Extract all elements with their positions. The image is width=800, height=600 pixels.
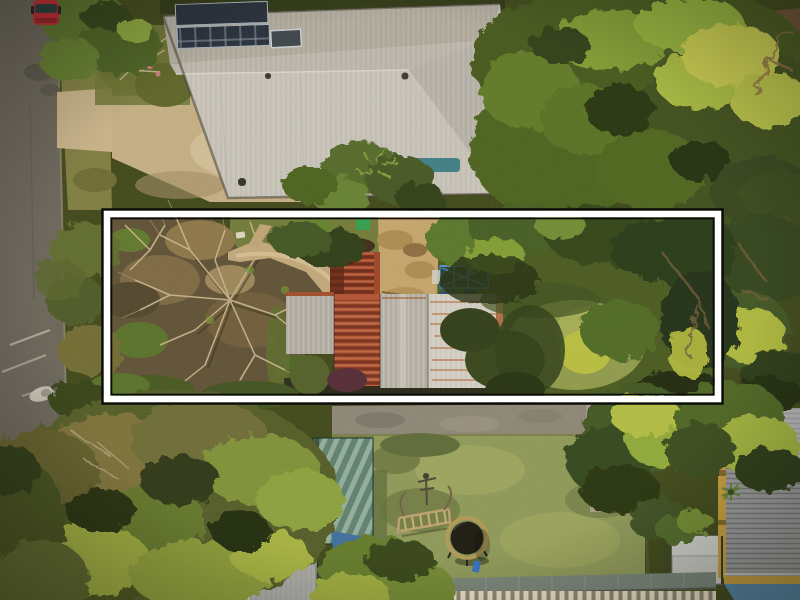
aerial-photo: [0, 0, 800, 600]
photo-canvas: [0, 0, 800, 600]
vignette: [0, 0, 800, 600]
